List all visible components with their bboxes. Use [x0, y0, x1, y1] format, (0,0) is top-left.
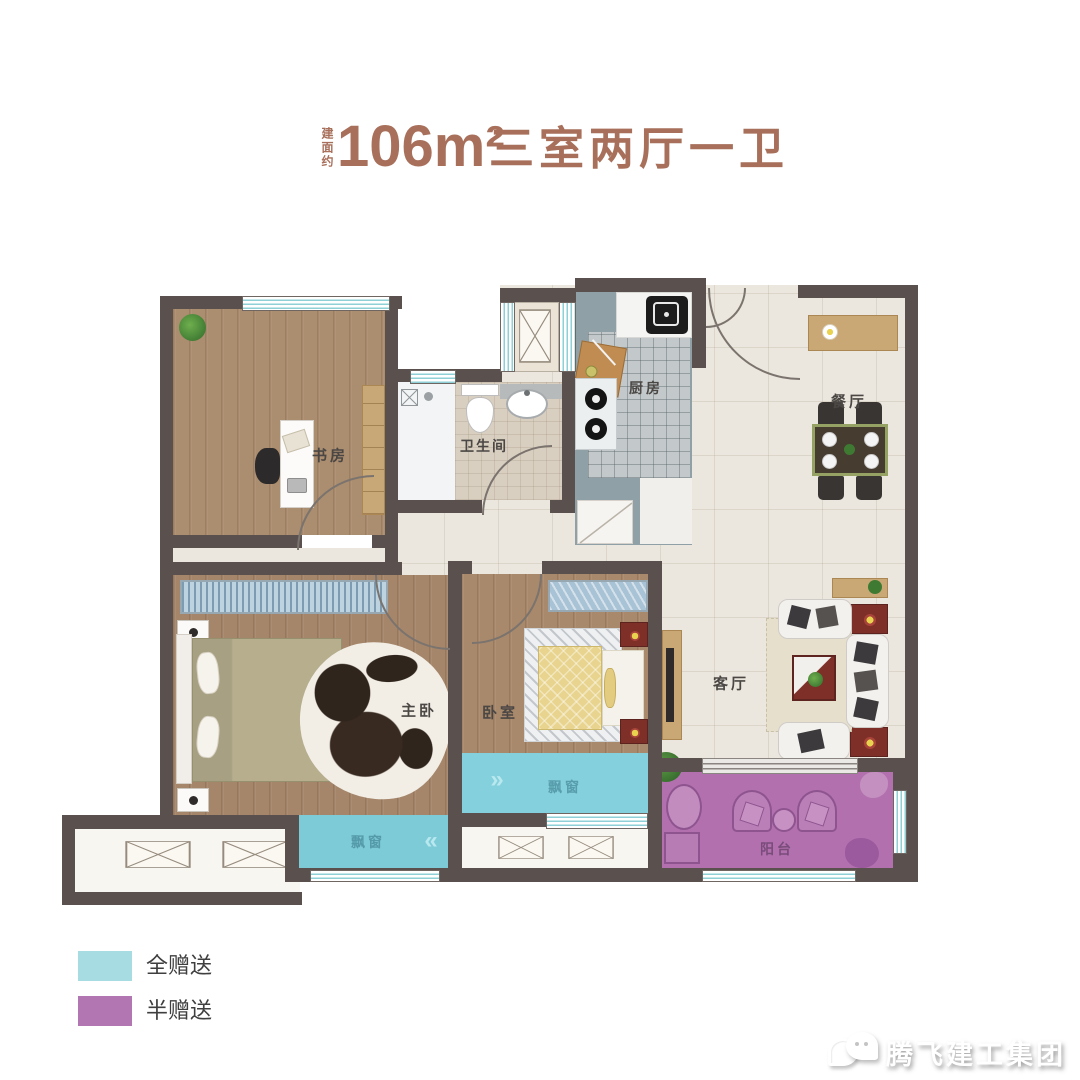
sofa: [846, 634, 889, 728]
coffee-table: [792, 655, 836, 701]
window: [242, 296, 390, 311]
wall: [500, 288, 576, 302]
chair-cushion: [739, 801, 764, 826]
lamp-icon: [630, 631, 640, 641]
wall: [893, 758, 905, 790]
kitchen-sink-drain: [664, 312, 669, 317]
plate-icon: [822, 432, 837, 447]
wall: [462, 813, 546, 827]
corridor-floor: [173, 548, 398, 562]
equipment-platform-icon: [498, 836, 544, 859]
chevron-left-icon: «: [424, 827, 437, 855]
sofa-cushion: [797, 729, 825, 754]
window: [546, 813, 648, 829]
tv-screen: [666, 648, 674, 722]
wall: [893, 852, 905, 882]
kitchen-cabinet: [577, 500, 633, 544]
wall: [385, 296, 398, 562]
brand-name: 腾飞建工集团: [886, 1033, 1066, 1072]
bed: [538, 646, 602, 730]
plate-icon: [864, 454, 879, 469]
lamp-icon: [189, 796, 198, 805]
wall: [390, 500, 482, 513]
bubble-eye-icon: [855, 1042, 859, 1046]
kitchen-sink: [646, 296, 688, 334]
dining-chair: [856, 476, 882, 500]
room-label-bay-window-bedroom: 飘窗: [548, 777, 582, 797]
floor-drain-icon: [424, 392, 433, 401]
wall: [798, 285, 918, 298]
sink-faucet-icon: [524, 390, 530, 396]
wall: [648, 561, 662, 882]
chair-cushion: [804, 801, 829, 826]
side-table: [850, 604, 888, 634]
wall: [575, 278, 706, 292]
console-plant-icon: [868, 580, 882, 594]
side-table-decor-icon: [864, 614, 876, 626]
burner-ring: [592, 395, 600, 403]
title-area-prefix: 建面约: [319, 127, 336, 169]
chevron-right-icon: »: [490, 766, 503, 794]
room-label-kitchen: 厨房: [629, 378, 663, 398]
side-table: [850, 727, 888, 757]
window: [310, 870, 440, 882]
sofa-cushion: [854, 670, 879, 693]
legend-swatch-full-gift: [78, 951, 132, 981]
exterior-notch: [390, 278, 500, 369]
table-plant-icon: [844, 444, 855, 455]
stove-burner: [585, 388, 607, 410]
nightstand: [620, 719, 648, 744]
nightstand: [177, 788, 209, 812]
wall: [692, 278, 706, 368]
lamp-icon: [630, 728, 640, 738]
room-label-bedroom: 卧室: [482, 702, 518, 723]
window: [702, 870, 856, 882]
fridge-space: [640, 478, 692, 544]
wardrobe: [180, 580, 388, 614]
sofa-cushion: [853, 697, 879, 721]
sliding-door: [702, 758, 858, 774]
shower-drain-icon: [401, 389, 418, 406]
chat-bubble-face-icon: [846, 1032, 878, 1060]
flower-decor-icon: [822, 324, 838, 340]
wall: [562, 370, 575, 513]
room-label-bay-window-master: 飘窗: [351, 832, 385, 852]
legend-label-full-gift: 全赠送: [146, 951, 212, 981]
equipment-platform-icon: [568, 836, 614, 859]
toilet-tank: [461, 384, 499, 396]
flower-decor-icon: [845, 838, 879, 868]
sofa-cushion: [853, 641, 878, 665]
room-label-study: 书房: [312, 445, 348, 466]
title-layout-text: 三室两厅一卫: [489, 122, 789, 176]
sofa: [778, 722, 850, 760]
office-chair: [255, 448, 280, 484]
balcony-table: [772, 808, 796, 832]
wall: [542, 561, 662, 574]
nightstand: [620, 622, 648, 647]
balcony-chair: [732, 790, 772, 832]
wall: [448, 561, 472, 574]
desk-laptop: [287, 478, 307, 493]
room-label-bathroom: 卫生间: [460, 436, 508, 456]
bed-headboard: [176, 634, 192, 784]
brand-logo-icon: [828, 1030, 882, 1072]
wall: [372, 535, 398, 548]
legend-label-half-gift: 半赠送: [146, 996, 212, 1026]
bubble-eye-icon: [864, 1042, 868, 1046]
room-label-dining: 餐厅: [831, 391, 867, 412]
vegetable-icon: [584, 365, 598, 379]
plant-icon: [179, 314, 206, 341]
plate-icon: [864, 432, 879, 447]
window: [893, 790, 907, 854]
wall: [660, 758, 702, 772]
room-label-balcony: 阳台: [760, 839, 794, 859]
wardrobe: [548, 580, 648, 612]
window: [500, 302, 515, 372]
dining-chair: [818, 476, 844, 500]
burner-ring: [592, 425, 600, 433]
coffee-table-plant-icon: [808, 672, 823, 687]
wall: [160, 562, 402, 575]
room-label-living: 客厅: [713, 673, 749, 694]
floor-plan-page: 建面约 106m² 三室两厅一卫: [0, 0, 1080, 1080]
equipment-platform-icon: [222, 841, 288, 868]
wall: [62, 815, 299, 829]
wall: [448, 561, 462, 882]
equipment-platform-icon: [125, 841, 191, 868]
sofa-cushion: [787, 605, 811, 629]
sofa-cushion: [815, 605, 838, 628]
side-table-decor-icon: [864, 737, 876, 749]
equipment-platform-icon: [519, 309, 551, 363]
plate-icon: [822, 454, 837, 469]
stove-burner: [585, 418, 607, 440]
platform-middle: [462, 827, 648, 868]
legend-swatch-half-gift: [78, 996, 132, 1026]
window: [410, 370, 456, 384]
wall: [448, 868, 662, 882]
sofa: [778, 599, 852, 639]
wall: [62, 892, 302, 905]
title-area-value: 106m²: [337, 118, 505, 176]
balcony-chair: [797, 790, 837, 832]
laundry-cabinet: [664, 832, 700, 864]
wall: [160, 535, 302, 548]
window: [559, 302, 576, 372]
wash-basin: [666, 784, 702, 830]
pillow: [604, 668, 616, 708]
room-label-master-bedroom: 主卧: [401, 700, 437, 721]
